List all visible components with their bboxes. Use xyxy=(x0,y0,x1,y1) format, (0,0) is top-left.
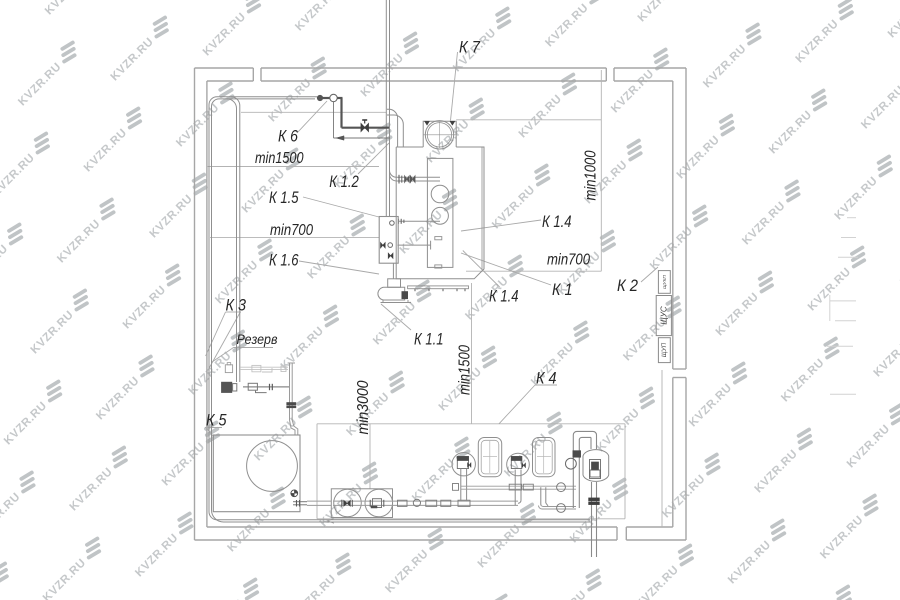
svg-text:min1500: min1500 xyxy=(255,150,304,167)
svg-text:К 1.2: К 1.2 xyxy=(329,173,359,191)
svg-text:Резерв: Резерв xyxy=(237,331,278,347)
svg-text:KVZR.RU: KVZR.RU xyxy=(872,332,900,380)
svg-text:KVZR.RU: KVZR.RU xyxy=(226,507,274,555)
svg-text:KVZR.RU: KVZR.RU xyxy=(779,357,827,405)
svg-text:KVZR.RU: KVZR.RU xyxy=(794,18,842,66)
svg-text:KVZR.RU: KVZR.RU xyxy=(687,382,735,430)
svg-text:KVZR.RU: KVZR.RU xyxy=(291,573,339,600)
svg-text:KVZR.RU: KVZR.RU xyxy=(845,423,893,471)
svg-text:KVZR.RU: KVZR.RU xyxy=(41,557,89,600)
svg-text:KVZR.RU: KVZR.RU xyxy=(476,523,524,571)
svg-text:min700: min700 xyxy=(270,222,313,239)
svg-text:К 1.5: К 1.5 xyxy=(269,189,299,207)
svg-text:KVZR.RU: KVZR.RU xyxy=(133,532,181,580)
svg-text:min1000: min1000 xyxy=(583,150,600,200)
svg-text:ЩУП: ЩУП xyxy=(661,342,668,357)
svg-text:KVZR.RU: KVZR.RU xyxy=(383,548,431,596)
svg-text:KVZR.RU: KVZR.RU xyxy=(16,61,64,109)
svg-text:KVZR.RU: KVZR.RU xyxy=(29,309,77,357)
svg-text:KVZR.RU: KVZR.RU xyxy=(0,243,11,291)
svg-text:KVZR.RU: KVZR.RU xyxy=(279,325,327,373)
svg-text:KVZR.RU: KVZR.RU xyxy=(541,589,589,600)
svg-text:KVZR.RU: KVZR.RU xyxy=(609,68,657,116)
svg-text:KVZR.RU: KVZR.RU xyxy=(634,564,682,600)
svg-text:KVZR.RU: KVZR.RU xyxy=(660,473,708,521)
svg-text:KVZR.RU: KVZR.RU xyxy=(859,84,900,132)
svg-text:KVZR.RU: KVZR.RU xyxy=(398,209,446,257)
svg-text:min700: min700 xyxy=(547,252,590,269)
svg-text:KVZR.RU: KVZR.RU xyxy=(82,127,130,175)
svg-text:KVZR.RU: KVZR.RU xyxy=(410,457,458,505)
svg-text:KVZR.RU: KVZR.RU xyxy=(201,11,249,59)
svg-text:KVZR.RU: KVZR.RU xyxy=(293,0,341,33)
svg-text:К 6: К 6 xyxy=(278,128,299,146)
svg-text:KVZR.RU: KVZR.RU xyxy=(886,0,900,40)
svg-text:KVZR.RU: KVZR.RU xyxy=(174,102,222,150)
svg-text:К 4: К 4 xyxy=(536,370,557,388)
svg-text:ЩУС: ЩУС xyxy=(659,306,668,324)
svg-text:KVZR.RU: KVZR.RU xyxy=(648,225,696,273)
svg-text:KVZR.RU: KVZR.RU xyxy=(371,300,419,348)
svg-text:KVZR.RU: KVZR.RU xyxy=(109,36,157,84)
svg-text:KVZR.RU: KVZR.RU xyxy=(726,539,774,587)
svg-text:KVZR.RU: KVZR.RU xyxy=(0,152,37,200)
svg-text:KVZR.RU: KVZR.RU xyxy=(267,77,315,125)
svg-text:KVZR.RU: KVZR.RU xyxy=(55,218,103,266)
svg-text:KVZR.RU: KVZR.RU xyxy=(68,466,116,514)
svg-text:min3000: min3000 xyxy=(355,380,372,434)
svg-text:К 1: К 1 xyxy=(552,281,573,299)
svg-text:KVZR.RU: KVZR.RU xyxy=(818,514,866,562)
svg-text:KVZR.RU: KVZR.RU xyxy=(767,109,815,157)
svg-text:К 2: К 2 xyxy=(617,277,638,295)
svg-text:KVZR.RU: KVZR.RU xyxy=(753,448,801,496)
svg-text:KVZR.RU: KVZR.RU xyxy=(595,407,643,455)
svg-text:KVZR.RU: KVZR.RU xyxy=(121,284,169,332)
svg-text:К 1.4: К 1.4 xyxy=(542,213,572,231)
svg-text:KVZR.RU: KVZR.RU xyxy=(543,2,591,50)
svg-text:К 1.1: К 1.1 xyxy=(414,331,444,349)
svg-text:KVZR.RU: KVZR.RU xyxy=(636,0,684,24)
svg-text:KVZR.RU: KVZR.RU xyxy=(740,200,788,248)
svg-text:К 7: К 7 xyxy=(459,39,481,57)
svg-text:KVZR.RU: KVZR.RU xyxy=(359,52,407,100)
svg-text:К 1.6: К 1.6 xyxy=(269,252,299,270)
svg-text:KVZR.RU: KVZR.RU xyxy=(517,93,565,141)
svg-text:KVZR.RU: KVZR.RU xyxy=(714,291,762,339)
svg-text:KVZR.RU: KVZR.RU xyxy=(675,134,723,182)
svg-text:KVZR.RU: KVZR.RU xyxy=(833,175,881,223)
svg-text:ЩУКП: ЩУКП xyxy=(662,275,668,289)
svg-text:KVZR.RU: KVZR.RU xyxy=(94,375,142,423)
svg-text:KVZR.RU: KVZR.RU xyxy=(701,43,749,91)
svg-text:К 3: К 3 xyxy=(226,297,247,315)
svg-text:К 1.4: К 1.4 xyxy=(489,288,519,306)
svg-text:KVZR.RU: KVZR.RU xyxy=(148,193,196,241)
svg-text:min1500: min1500 xyxy=(457,345,474,395)
svg-text:KVZR.RU: KVZR.RU xyxy=(306,234,354,282)
svg-text:KVZR.RU: KVZR.RU xyxy=(2,400,50,448)
svg-text:KVZR.RU: KVZR.RU xyxy=(43,0,91,17)
svg-text:KVZR.RU: KVZR.RU xyxy=(0,491,23,539)
svg-text:KVZR.RU: KVZR.RU xyxy=(160,441,208,489)
svg-text:К 5: К 5 xyxy=(206,412,227,430)
